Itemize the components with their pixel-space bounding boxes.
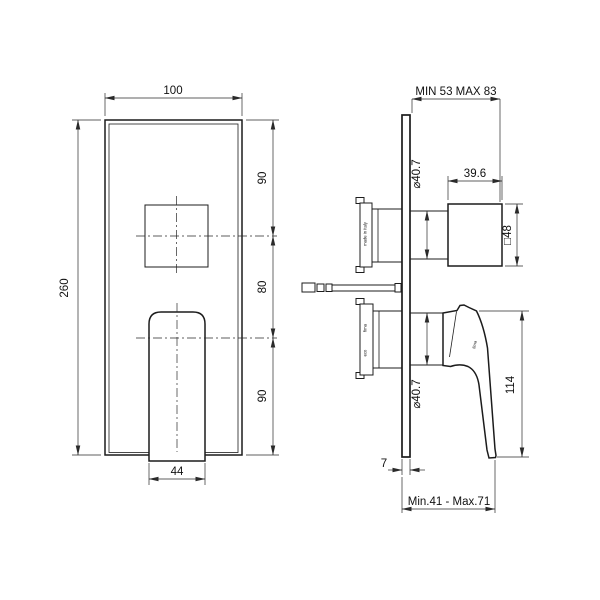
brand-mark-upper: fima [363, 323, 368, 332]
dim-install-depth-range: MIN 53 MAX 83 [415, 86, 496, 98]
dim-lower-cartridge-diameter: ⌀40.7 [411, 379, 423, 408]
dim-knob-square-size: □48 [502, 225, 514, 245]
dim-plate-thickness: 7 [381, 458, 387, 470]
made-in-italy-mark: made in Italy [363, 221, 368, 246]
dim-plate-width: 100 [163, 85, 182, 97]
upper-cartridge-body: made in Italy [356, 198, 402, 273]
drawing-canvas: 100 260 90 80 90 44 [0, 0, 600, 600]
front-handle [149, 312, 205, 461]
brand-mark-lower: eco [363, 349, 368, 356]
dim-segment-middle: 80 [257, 281, 269, 294]
side-view: made in Italy fima eco fima [302, 86, 529, 513]
side-handle: fima [443, 305, 496, 458]
side-plate [402, 115, 410, 457]
dim-knob-depth: 39.6 [464, 168, 486, 180]
front-view: 100 260 90 80 90 44 [59, 85, 279, 485]
technical-drawing: 100 260 90 80 90 44 [0, 0, 600, 600]
side-diverter-knob [448, 204, 502, 266]
dim-handle-width: 44 [171, 466, 184, 478]
dim-upper-cartridge-diameter: ⌀40.7 [411, 159, 423, 188]
lower-cartridge-body: fima eco [356, 299, 402, 379]
outlet-pipe-stub [302, 283, 401, 292]
dim-handle-height: 114 [505, 375, 517, 394]
dim-segment-top: 90 [257, 172, 269, 185]
dim-segment-bottom: 90 [257, 390, 269, 403]
dim-handle-projection-range: Min.41 - Max.71 [408, 496, 490, 508]
dim-plate-height: 260 [59, 278, 71, 297]
